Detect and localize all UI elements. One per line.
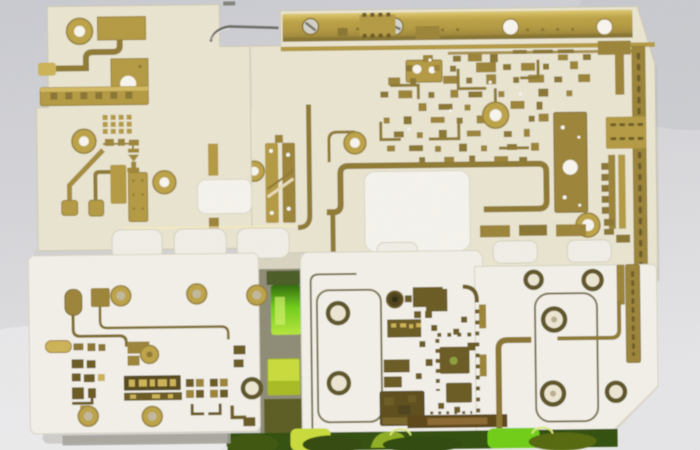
photo-grain (0, 0, 700, 450)
pcb-photo (0, 0, 700, 450)
